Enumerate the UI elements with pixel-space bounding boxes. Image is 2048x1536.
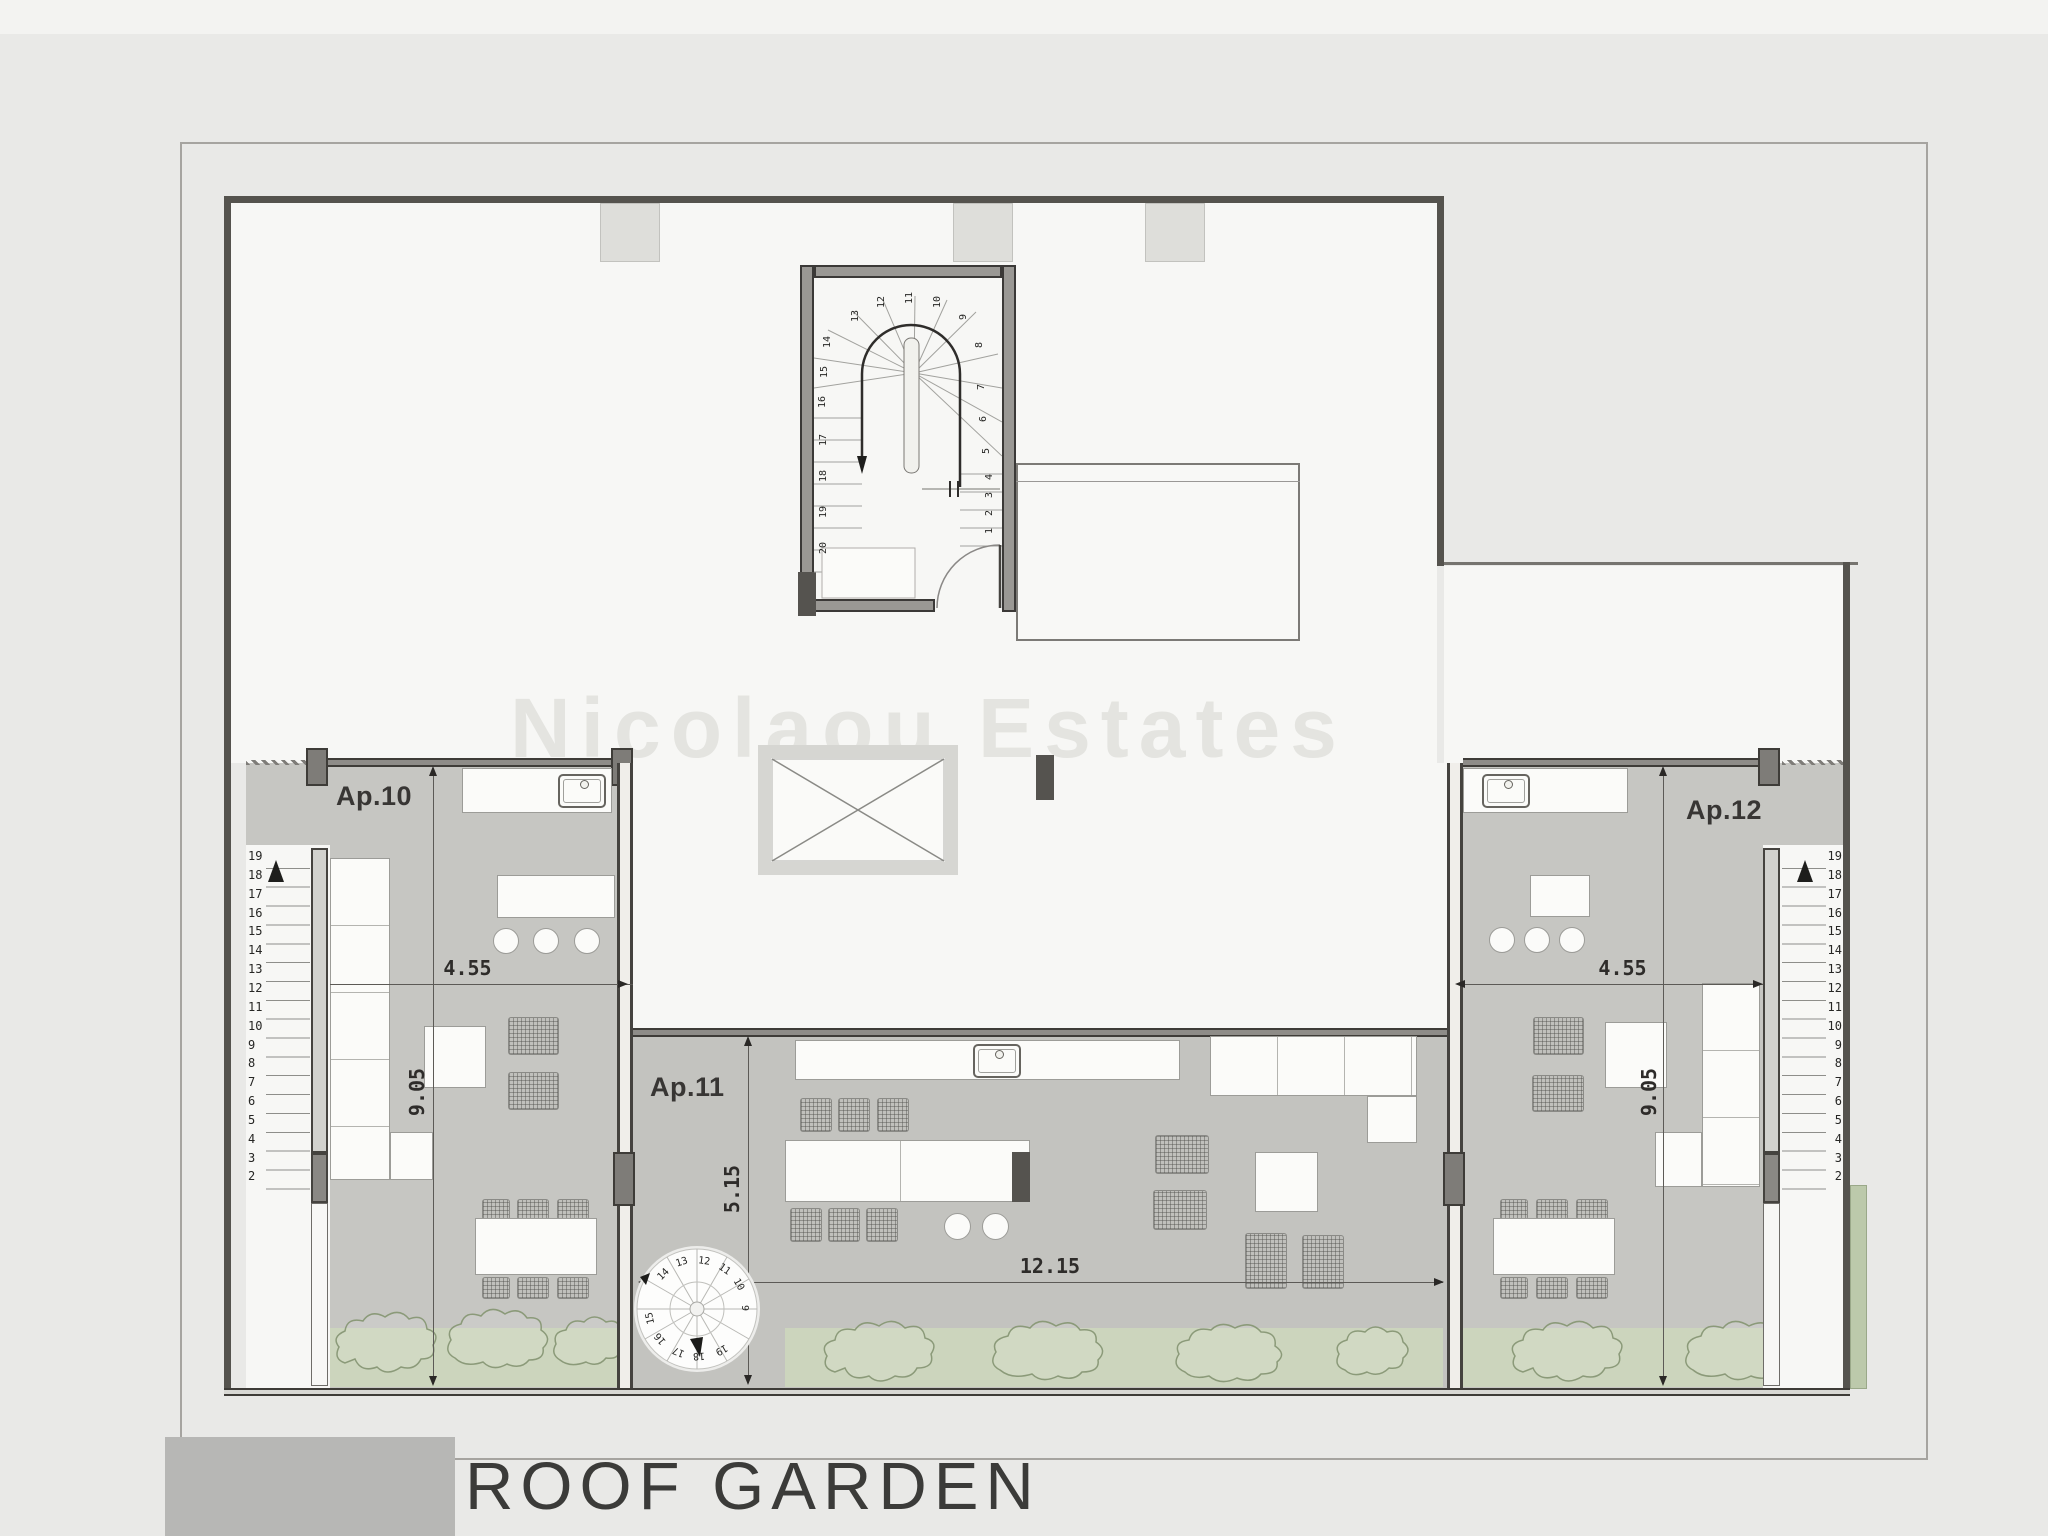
stair-number: 18 xyxy=(248,868,268,882)
stair-number: 3 xyxy=(248,1151,268,1165)
left-stair-treads xyxy=(266,850,310,1190)
roof-surface-middle xyxy=(633,763,1447,1032)
ap11-depth-arrow-top xyxy=(744,1036,752,1046)
ap10-width-dim: 4.55 xyxy=(430,956,505,980)
wall-ap10-top xyxy=(310,758,633,767)
ap11-sofa-corner xyxy=(1367,1096,1417,1143)
stair-number: 18 xyxy=(1818,868,1842,882)
ap10-chair-t2 xyxy=(517,1199,549,1220)
ap12-chair-t2 xyxy=(1536,1199,1568,1220)
machine-room xyxy=(1016,463,1300,641)
left-stair-rail-block xyxy=(311,1153,328,1203)
stair-number: 12 xyxy=(248,981,268,995)
stair-number: 8 xyxy=(248,1056,268,1070)
cutline-ap12 xyxy=(1782,760,1843,765)
stair-number: 11 xyxy=(1818,1000,1842,1014)
ap12-bar-table xyxy=(1530,875,1590,917)
stair-number: 2 xyxy=(248,1169,268,1183)
ap12-depth-dim: 9.05 xyxy=(1637,1049,1661,1135)
ap12-stool-3 xyxy=(1559,927,1585,953)
wall-left xyxy=(224,196,231,1396)
elevator-shaft xyxy=(758,745,958,875)
spiral-number: 18 xyxy=(691,1348,708,1363)
legend-swatch xyxy=(165,1437,455,1536)
stair-number: 6 xyxy=(1818,1094,1842,1108)
stair-number: 16 xyxy=(248,906,268,920)
stair-number: 10 xyxy=(1818,1019,1842,1033)
ap12-rug-1 xyxy=(1533,1017,1584,1055)
svg-text:2: 2 xyxy=(984,510,995,516)
roof-duct-2 xyxy=(953,203,1013,262)
ap11-sofa xyxy=(1210,1036,1417,1096)
stair-number: 5 xyxy=(248,1113,268,1127)
ap10-bar-table xyxy=(497,875,615,918)
stair-number: 5 xyxy=(1818,1113,1842,1127)
right-stair-numbers: 1918171615141312111098765432 xyxy=(1818,849,1842,1194)
svg-text:7: 7 xyxy=(976,384,987,390)
stair-room-wall-top xyxy=(814,265,1002,278)
ap11-width-dim: 12.15 xyxy=(1000,1254,1100,1278)
bushes-ap11 xyxy=(785,1312,1443,1390)
ap12-width-dim: 4.55 xyxy=(1585,956,1660,980)
ap12-sofa xyxy=(1702,983,1760,1187)
ap10-sofa xyxy=(330,858,390,1180)
bushes-ap10 xyxy=(320,1288,635,1388)
left-stair-rail xyxy=(311,848,328,1153)
ap10-dining-table xyxy=(475,1218,597,1275)
stair-number: 6 xyxy=(248,1094,268,1108)
spiral-number: 12 xyxy=(695,1254,713,1270)
ap10-depth-dim: 9.05 xyxy=(405,1049,429,1135)
roof-surface-right xyxy=(1444,566,1843,763)
wall-ap12-top xyxy=(1463,758,1763,767)
stair-number: 4 xyxy=(1818,1132,1842,1146)
svg-text:20: 20 xyxy=(818,542,829,554)
ap11-rug-2 xyxy=(1153,1190,1207,1230)
right-stair-rail-lower xyxy=(1763,1203,1780,1386)
machine-room-inner-line xyxy=(1016,481,1300,482)
right-stair-rail xyxy=(1763,848,1780,1153)
ap10-depth-arrow-bottom xyxy=(429,1376,437,1386)
ap10-stool-2 xyxy=(533,928,559,954)
roof-duct-1 xyxy=(600,203,660,262)
ap11-chair-t1 xyxy=(800,1098,832,1132)
svg-text:6: 6 xyxy=(978,416,989,422)
svg-text:10: 10 xyxy=(932,296,943,308)
stair-number: 13 xyxy=(248,962,268,976)
stair-room-wall-left xyxy=(800,265,814,612)
stair-number: 15 xyxy=(1818,924,1842,938)
ap12-chair-t3 xyxy=(1576,1199,1608,1220)
ap10-width-dim-line xyxy=(328,984,633,985)
stair-number: 15 xyxy=(248,924,268,938)
wall-top xyxy=(224,196,1444,203)
svg-text:1: 1 xyxy=(984,528,995,534)
ap11-table-divider xyxy=(900,1141,901,1201)
ap11-chair-b1 xyxy=(790,1208,822,1242)
ap12-chair-b3 xyxy=(1576,1277,1608,1299)
planter-right-edge xyxy=(1850,1185,1867,1389)
ap10-stool-1 xyxy=(493,928,519,954)
elevator-x-icon xyxy=(771,758,945,862)
stair-number: 9 xyxy=(1818,1038,1842,1052)
ap12-sink xyxy=(1482,774,1530,808)
svg-text:12: 12 xyxy=(876,296,887,308)
ap12-width-arrow-right xyxy=(1753,980,1763,988)
right-stair-up-arrow xyxy=(1797,860,1813,882)
stair-number: 3 xyxy=(1818,1151,1842,1165)
svg-text:5: 5 xyxy=(981,448,992,454)
stair-room-wall-bottom xyxy=(814,599,935,612)
jamb-ap12-top xyxy=(1758,748,1780,786)
stair-room-door xyxy=(935,535,1005,613)
stair-number: 2 xyxy=(1818,1169,1842,1183)
ap12-width-arrow-left xyxy=(1455,980,1465,988)
ap11-rug-1 xyxy=(1155,1135,1209,1174)
ap12-chair-b1 xyxy=(1500,1277,1528,1299)
stair-number: 19 xyxy=(248,849,268,863)
ap11-sink xyxy=(973,1044,1021,1078)
ap11-coffee-table xyxy=(1255,1152,1318,1212)
ap11-grill-block xyxy=(1012,1152,1030,1202)
ap11-stool-2 xyxy=(982,1213,1009,1240)
stair-number: 17 xyxy=(248,887,268,901)
ap10-rug-2 xyxy=(508,1072,559,1110)
ap10-rug-1 xyxy=(508,1017,559,1055)
ap10-sink xyxy=(558,774,606,808)
svg-text:16: 16 xyxy=(817,396,828,408)
elevator-door-block xyxy=(1036,755,1054,800)
svg-text:3: 3 xyxy=(984,492,995,498)
ap10-chair-b3 xyxy=(557,1277,589,1299)
ap12-rug-2 xyxy=(1532,1075,1584,1112)
jamb-ap10-left xyxy=(306,748,328,786)
ap11-depth-dim: 5.15 xyxy=(720,1146,744,1232)
ap11-rug-4 xyxy=(1302,1235,1344,1289)
stair-number: 16 xyxy=(1818,906,1842,920)
svg-text:19: 19 xyxy=(818,506,829,518)
stair-number: 19 xyxy=(1818,849,1842,863)
ap10-chair-b2 xyxy=(517,1277,549,1299)
ap12-stool-2 xyxy=(1524,927,1550,953)
svg-text:13: 13 xyxy=(850,310,861,322)
roof-duct-3 xyxy=(1145,203,1205,262)
ap11-chair-b2 xyxy=(828,1208,860,1242)
page-top-strip xyxy=(0,0,2048,34)
ap12-depth-arrow-bottom xyxy=(1659,1376,1667,1386)
wall-right-upper xyxy=(1437,196,1444,566)
label-ap11: Ap.11 xyxy=(650,1072,725,1103)
stair-number: 11 xyxy=(248,1000,268,1014)
ap12-chair-t1 xyxy=(1500,1199,1528,1220)
ap11-chair-b3 xyxy=(866,1208,898,1242)
ap12-depth-dim-line xyxy=(1663,770,1664,1384)
ap12-chair-b2 xyxy=(1536,1277,1568,1299)
ap10-chair-t3 xyxy=(557,1199,589,1220)
left-stair-up-arrow xyxy=(268,860,284,882)
stair-number: 17 xyxy=(1818,887,1842,901)
svg-text:9: 9 xyxy=(958,314,969,320)
right-stair-rail-block xyxy=(1763,1153,1780,1203)
svg-text:8: 8 xyxy=(974,342,985,348)
stair-number: 10 xyxy=(248,1019,268,1033)
ap11-chair-t3 xyxy=(877,1098,909,1132)
ap12-stool-1 xyxy=(1489,927,1515,953)
ap10-chair-t1 xyxy=(482,1199,510,1220)
wall-right-lower xyxy=(1843,562,1850,1396)
stair-number: 4 xyxy=(248,1132,268,1146)
ap10-stool-3 xyxy=(574,928,600,954)
stair-number: 8 xyxy=(1818,1056,1842,1070)
stair-number: 9 xyxy=(248,1038,268,1052)
spiral-number: 15 xyxy=(642,1309,659,1328)
stair-number: 7 xyxy=(1818,1075,1842,1089)
ap11-dining-table xyxy=(785,1140,1030,1202)
label-ap10: Ap.10 xyxy=(336,781,412,812)
stair-number: 14 xyxy=(1818,943,1842,957)
ap11-chair-t2 xyxy=(838,1098,870,1132)
left-stair-rail-lower xyxy=(311,1203,328,1386)
ap10-sofa-corner xyxy=(390,1132,433,1180)
svg-text:14: 14 xyxy=(822,336,833,348)
page-title: ROOF GARDEN xyxy=(465,1448,1041,1525)
ap12-width-dim-line xyxy=(1463,984,1768,985)
stair-number: 13 xyxy=(1818,962,1842,976)
stair-number: 12 xyxy=(1818,981,1842,995)
cutline-ap10 xyxy=(246,760,310,765)
wall-step-right xyxy=(1444,562,1858,565)
ap10-depth-arrow-top xyxy=(429,766,437,776)
roof-garden-floor-plan: Nicolaou Estates xyxy=(0,0,2048,1536)
wall-ap11-ap12 xyxy=(1447,763,1463,1388)
label-ap12: Ap.12 xyxy=(1686,795,1762,826)
ap10-width-arrow-right xyxy=(618,980,628,988)
jamb-ap11-left xyxy=(613,1152,635,1206)
ap11-width-arrow-right xyxy=(1434,1278,1444,1286)
spiral-stair: 9 10 11 12 13 14 15 16 17 18 19 xyxy=(630,1243,764,1377)
stair-number: 14 xyxy=(248,943,268,957)
wall-bottom-terraces xyxy=(224,1388,1850,1396)
ap10-depth-dim-line xyxy=(433,770,434,1384)
svg-text:18: 18 xyxy=(818,470,829,482)
ap12-depth-arrow-top xyxy=(1659,766,1667,776)
stair-number: 7 xyxy=(248,1075,268,1089)
svg-text:11: 11 xyxy=(904,292,915,304)
ap10-chair-b1 xyxy=(482,1277,510,1299)
ap11-rug-3 xyxy=(1245,1233,1287,1289)
spiral-number: 9 xyxy=(737,1300,751,1316)
jamb-ap11-right xyxy=(1443,1152,1465,1206)
svg-text:4: 4 xyxy=(984,474,995,480)
left-stair-numbers: 1918171615141312111098765432 xyxy=(248,849,268,1194)
ap12-dining-table xyxy=(1493,1218,1615,1275)
svg-text:17: 17 xyxy=(818,434,829,446)
svg-text:15: 15 xyxy=(819,366,830,378)
ap11-stool-1 xyxy=(944,1213,971,1240)
